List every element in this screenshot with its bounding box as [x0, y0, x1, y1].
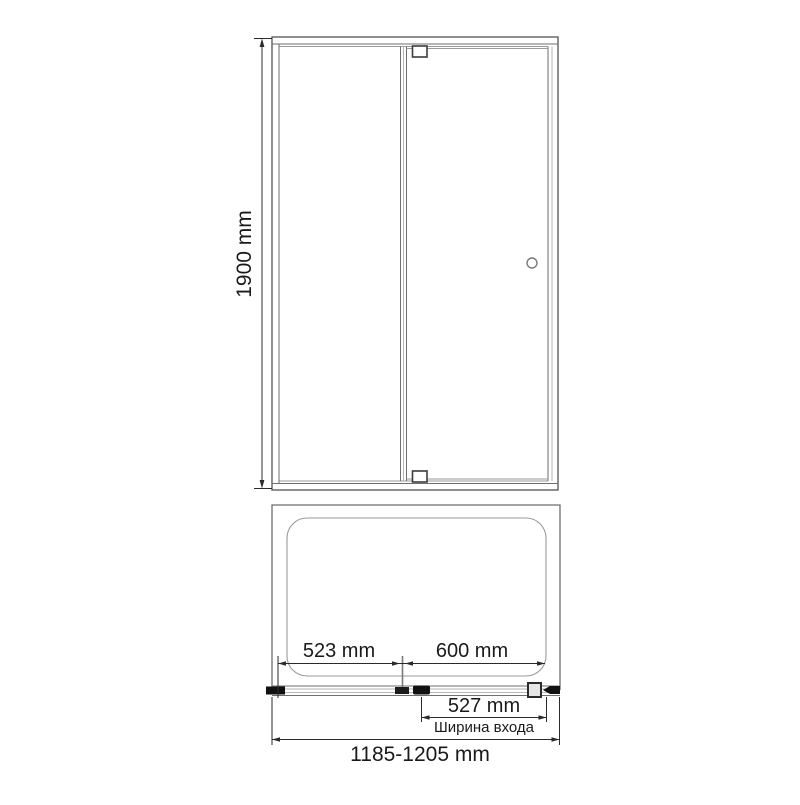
entrance-width-caption: Ширина входа [434, 719, 535, 736]
front-outer-frame [272, 37, 558, 490]
entrance-dim-arrow-right [539, 715, 547, 720]
door-knob-icon [527, 258, 537, 268]
panel-dim-arrow-left [278, 661, 286, 666]
technical-drawing-page: 1900 mm 523 mm 6 [0, 0, 800, 800]
panel-dim-arrow-mid-right [405, 661, 413, 666]
shower-door-drawing: 1900 mm 523 mm 6 [0, 0, 800, 800]
height-dimension [254, 39, 272, 489]
height-dim-arrow-down [260, 480, 265, 489]
plan-view: 523 mm 600 mm 527 mm Ширина входа 1185-1… [266, 505, 560, 766]
total-dim-arrow-left [272, 737, 280, 742]
center-clamp-plan [395, 687, 409, 694]
pivot-bracket-plan [528, 683, 541, 697]
panel-width-dimensions [278, 656, 545, 698]
fixed-panel-width-label: 523 mm [303, 640, 375, 662]
plan-outer-outline [272, 505, 560, 690]
entrance-dim-arrow-left [422, 715, 430, 720]
door-handle-plan [413, 686, 430, 695]
total-width-label: 1185-1205 mm [350, 743, 490, 766]
bottom-clamp-bracket [413, 471, 428, 482]
door-panel-width-label: 600 mm [436, 640, 508, 662]
entrance-width-label: 527 mm [448, 695, 520, 717]
height-dim-arrow-up [260, 39, 265, 48]
left-wall-profile [266, 687, 285, 695]
top-clamp-bracket [413, 46, 428, 57]
height-dimension-label: 1900 mm [233, 210, 256, 298]
front-elevation-view: 1900 mm [233, 37, 558, 490]
total-dim-arrow-right [552, 737, 560, 742]
panel-dim-arrow-mid-left [392, 661, 400, 666]
